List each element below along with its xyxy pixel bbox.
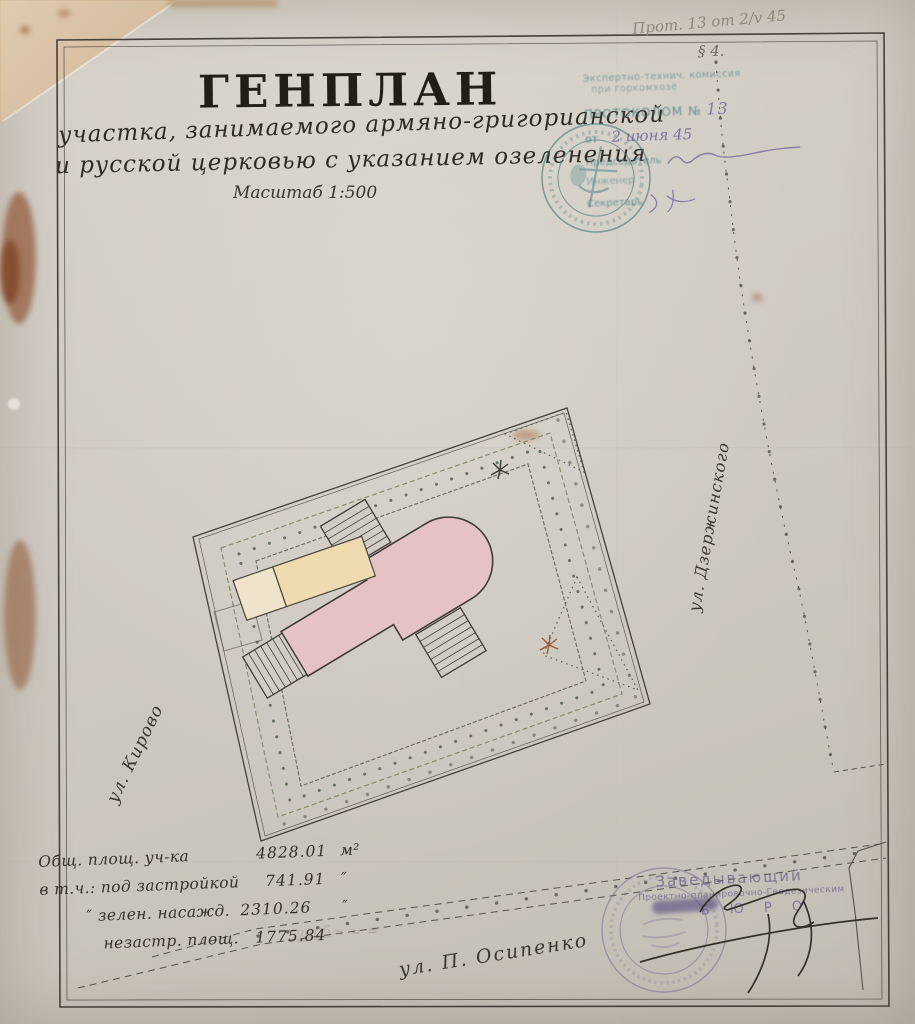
row-value: 1775.84 [255,926,327,947]
row-value: 4828.01 [256,842,328,863]
row-value: 741.91 [265,870,326,890]
row-unit: ″ [341,869,348,887]
area-table: Общ. площ. уч-ка 4828.01 м² в т.ч.: под … [38,839,402,965]
scanned-genplan-document: ГЕНПЛАН участка, занимаемого армяно-григ… [0,0,915,1024]
tree-icon [540,635,558,654]
row-value: 2310.26 [240,899,312,920]
bureau-signature-icon [600,860,900,1010]
row-unit: м² [340,841,361,860]
row-unit: ″ [342,897,349,915]
pencil-ticks: ≈ ≈ = [333,924,379,941]
row-label: незастр. площ. [103,929,239,952]
corner-bed [505,412,638,690]
street-line-dzerzhinskogo [716,62,886,772]
